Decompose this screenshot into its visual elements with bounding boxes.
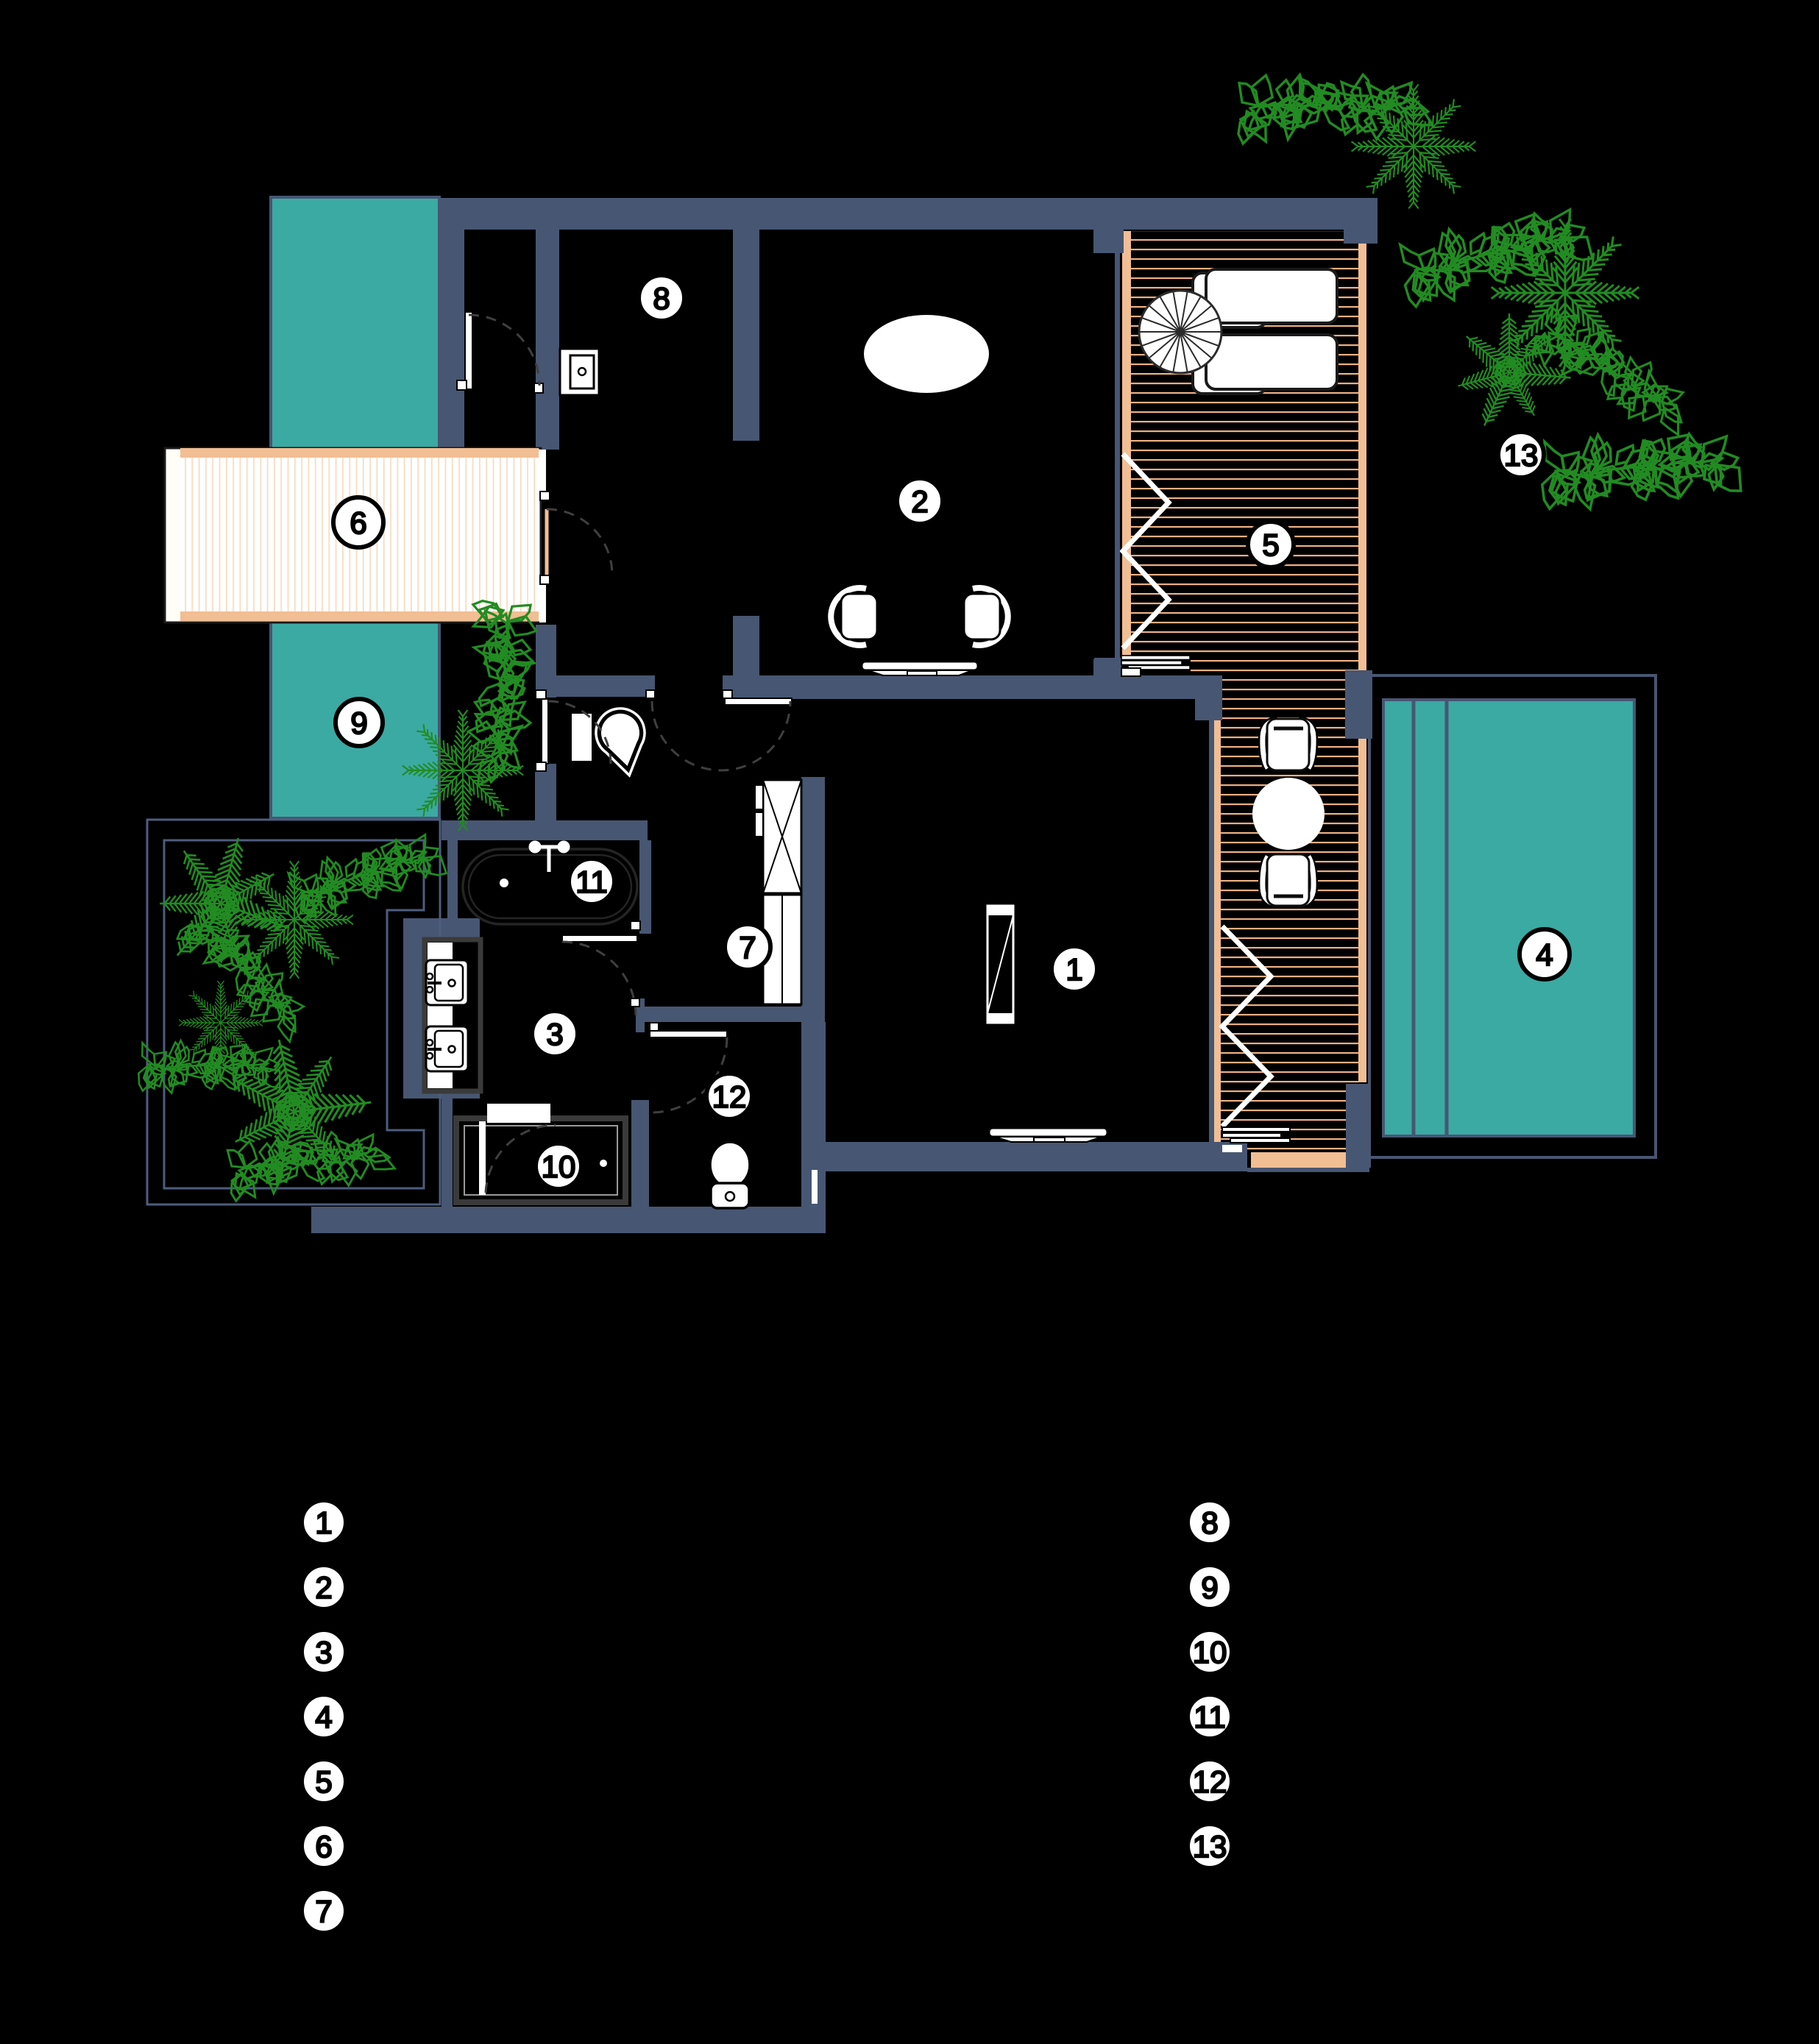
svg-text:2: 2 xyxy=(911,484,928,519)
svg-text:8: 8 xyxy=(1201,1505,1218,1540)
svg-text:11: 11 xyxy=(1194,1700,1226,1734)
svg-text:4: 4 xyxy=(1536,937,1553,972)
svg-text:4: 4 xyxy=(315,1700,332,1734)
svg-text:2: 2 xyxy=(315,1570,332,1605)
svg-text:1: 1 xyxy=(1065,952,1082,987)
svg-text:5: 5 xyxy=(315,1764,332,1799)
svg-text:5: 5 xyxy=(1262,528,1279,562)
svg-text:7: 7 xyxy=(315,1894,332,1928)
svg-text:7: 7 xyxy=(739,930,756,965)
svg-text:12: 12 xyxy=(712,1079,747,1114)
svg-text:9: 9 xyxy=(1201,1570,1218,1605)
svg-text:9: 9 xyxy=(350,706,367,740)
svg-text:6: 6 xyxy=(350,505,366,540)
svg-text:8: 8 xyxy=(653,281,670,316)
svg-text:12: 12 xyxy=(1193,1764,1227,1799)
svg-text:10: 10 xyxy=(1193,1635,1227,1669)
svg-text:6: 6 xyxy=(315,1829,332,1864)
svg-text:13: 13 xyxy=(1193,1829,1227,1864)
svg-text:1: 1 xyxy=(315,1505,332,1540)
svg-text:3: 3 xyxy=(315,1635,332,1669)
svg-text:3: 3 xyxy=(546,1017,563,1051)
svg-text:13: 13 xyxy=(1504,438,1539,472)
svg-text:10: 10 xyxy=(542,1149,576,1184)
svg-text:11: 11 xyxy=(575,865,608,899)
